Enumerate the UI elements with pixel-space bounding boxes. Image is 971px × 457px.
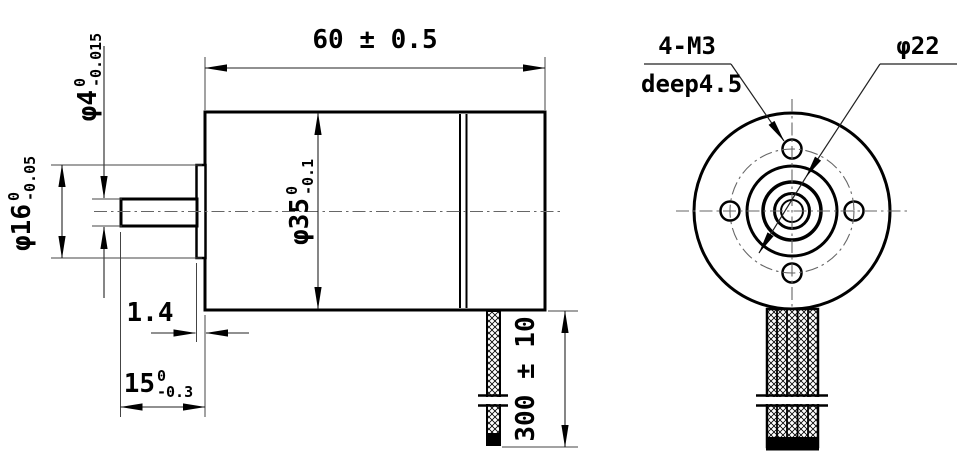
- mount-holes-depth-label: deep4.5: [641, 70, 742, 98]
- dim-shaft-diameter-lower-tol: -0.015: [87, 33, 105, 87]
- cable-side: [478, 311, 508, 446]
- engineering-drawing: 60 ± 0.5 φ35 0 -0.1 φ4 0 -0.015: [0, 0, 971, 457]
- cable-tip: [766, 437, 819, 451]
- dim-cable-length: 300 ± 10: [502, 311, 578, 447]
- side-view: 60 ± 0.5 φ35 0 -0.1 φ4 0 -0.015: [5, 25, 578, 447]
- dim-shaft-length-lower-tol: -0.3: [157, 383, 193, 401]
- dim-body-diameter-lower-tol: -0.1: [299, 159, 317, 195]
- dim-pilot-diameter-text: φ16: [7, 204, 37, 251]
- dim-pilot-diameter-lower-tol: -0.05: [21, 156, 39, 201]
- dim-shaft-length-text: 15: [124, 369, 155, 399]
- dim-cable-length-text: 300 ± 10: [511, 316, 541, 441]
- dim-shaft-diameter-text: φ4: [73, 90, 103, 121]
- dim-body-diameter-text: φ35: [285, 198, 315, 245]
- dim-body-length: 60 ± 0.5: [205, 25, 545, 110]
- bolt-circle-label: φ22: [896, 32, 939, 60]
- front-view: 4-M3 deep4.5 φ22: [641, 32, 957, 451]
- cable-front: [756, 309, 828, 451]
- cable-tip: [488, 433, 500, 446]
- dim-body-length-text: 60 ± 0.5: [312, 25, 437, 55]
- drawing-canvas: 60 ± 0.5 φ35 0 -0.1 φ4 0 -0.015: [0, 0, 971, 457]
- shaft-outline: [121, 199, 197, 226]
- mount-holes-label: 4-M3: [658, 32, 716, 60]
- dim-pilot-protrusion-text: 1.4: [127, 298, 174, 328]
